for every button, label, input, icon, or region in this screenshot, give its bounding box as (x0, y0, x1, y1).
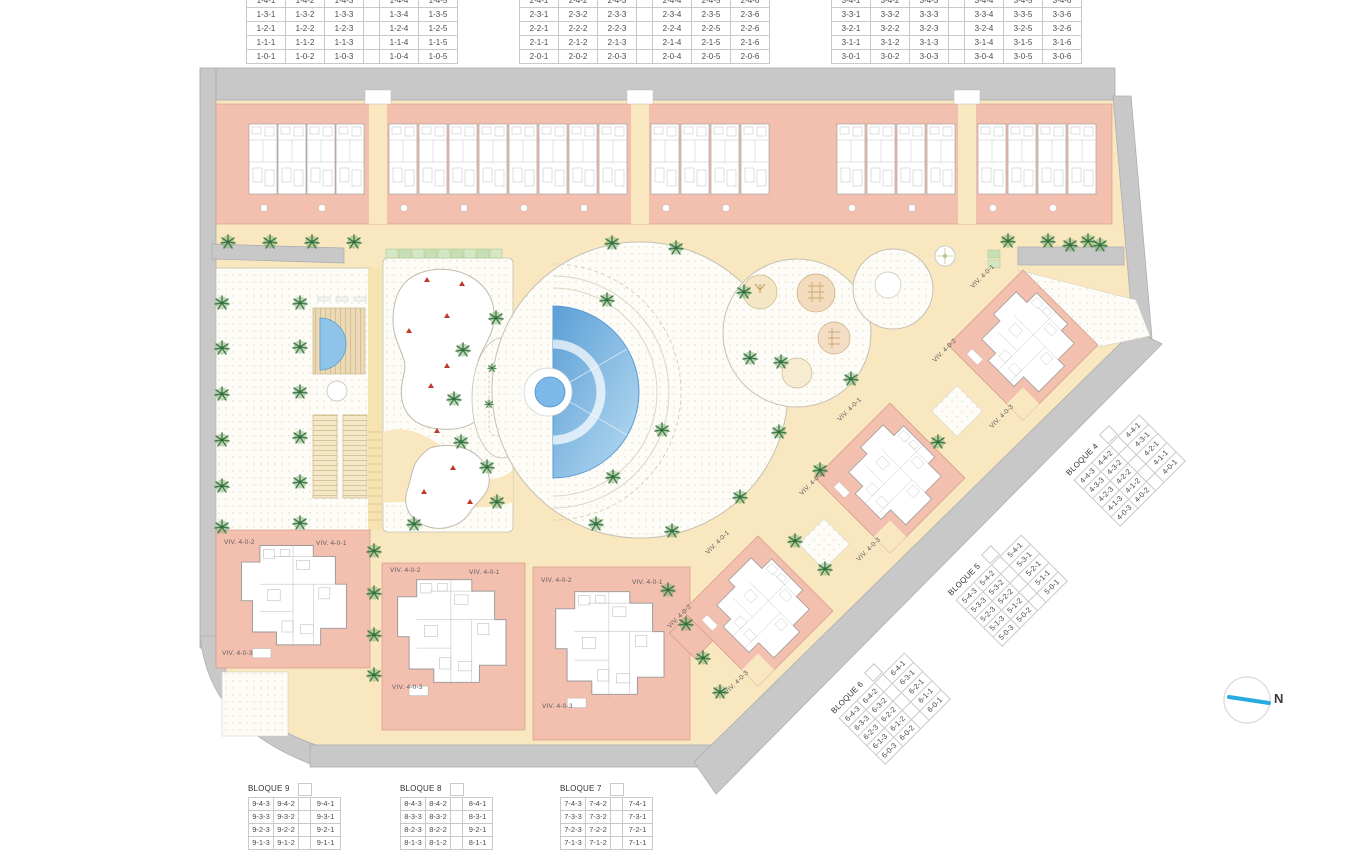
table-gap-cell (949, 36, 965, 50)
unit-cell: 7-2-3 (561, 824, 586, 837)
table-row: 1-3-11-3-21-3-31-3-41-3-5 (247, 8, 458, 22)
unit-cell: 3-4-5 (1004, 0, 1043, 8)
unit-cell: 3-4-4 (965, 0, 1004, 8)
unit-cell: 1-0-5 (419, 50, 458, 64)
unit-cell: 3-3-5 (1004, 8, 1043, 22)
table-gap-cell (949, 22, 965, 36)
table-row: 2-0-12-0-22-0-32-0-42-0-52-0-6 (520, 50, 770, 64)
unit-cell: 7-2-2 (586, 824, 611, 837)
unit-cell: 3-0-1 (832, 50, 871, 64)
table-gap-cell (637, 0, 653, 8)
unit-cell: 1-2-2 (286, 22, 325, 36)
table-row: 1-1-11-1-21-1-31-1-41-1-5 (247, 36, 458, 50)
unit-cell: 8-2-3 (401, 824, 426, 837)
unit-cell: 9-1-3 (249, 837, 274, 850)
unit-cell: 3-3-2 (871, 8, 910, 22)
table-row: 9-4-39-4-29-4-1 (249, 798, 341, 811)
unit-cell: 2-2-4 (653, 22, 692, 36)
table-row: 7-4-37-4-27-4-1 (561, 798, 653, 811)
unit-cell: 1-3-1 (247, 8, 286, 22)
unit-cell: 3-1-4 (965, 36, 1004, 50)
table-gap-cell (611, 824, 623, 837)
unit-cell: 3-2-1 (832, 22, 871, 36)
table-title: BLOQUE 8 (400, 784, 442, 793)
unit-cell: 2-3-4 (653, 8, 692, 22)
table-gap-cell (611, 837, 623, 850)
table-gap-cell (637, 22, 653, 36)
unit-cell: 3-3-4 (965, 8, 1004, 22)
unit-cell: 3-2-4 (965, 22, 1004, 36)
unit-table-bloque-9: BLOQUE 9 9-4-39-4-29-4-19-3-39-3-29-3-19… (248, 783, 343, 850)
unit-cell: 2-4-4 (653, 0, 692, 8)
table-row: 9-3-39-3-29-3-1 (249, 811, 341, 824)
unit-cell: 9-1-1 (311, 837, 341, 850)
table-gap-cell (299, 811, 311, 824)
unit-cell: 3-3-1 (832, 8, 871, 22)
unit-cell: 7-1-1 (623, 837, 653, 850)
unit-cell: 9-4-1 (311, 798, 341, 811)
unit-cell: 2-3-5 (692, 8, 731, 22)
unit-cell: 1-2-4 (380, 22, 419, 36)
unit-cell: 9-2-2 (274, 824, 299, 837)
table-row: 3-0-13-0-23-0-33-0-43-0-53-0-6 (832, 50, 1082, 64)
unit-cell: 3-1-3 (910, 36, 949, 50)
unit-cell: 2-2-1 (520, 22, 559, 36)
unit-cell: 3-3-6 (1043, 8, 1082, 22)
unit-cell: 2-2-5 (692, 22, 731, 36)
unit-cell: 2-0-3 (598, 50, 637, 64)
table-gap-cell (364, 8, 380, 22)
unit-label-block8-3: VIV. 4-0-3 (392, 684, 423, 691)
table-gap-cell (949, 0, 965, 8)
site-plan-page: 1-4-11-4-21-4-31-4-41-4-51-3-11-3-21-3-3… (0, 0, 1360, 850)
unit-cell: 1-3-3 (325, 8, 364, 22)
unit-cell: 8-4-2 (426, 798, 451, 811)
unit-cell: 7-3-1 (623, 811, 653, 824)
unit-cell: 2-0-4 (653, 50, 692, 64)
unit-cell: 8-3-2 (426, 811, 451, 824)
compass-rose-marker (935, 246, 955, 266)
unit-cell: 1-1-2 (286, 36, 325, 50)
unit-cell: 1-4-1 (247, 0, 286, 8)
unit-cell: 2-2-3 (598, 22, 637, 36)
unit-cell: 8-3-3 (401, 811, 426, 824)
unit-cell: 2-3-3 (598, 8, 637, 22)
unit-label-block9-3: VIV. 4-0-3 (222, 650, 253, 657)
table-row: 8-4-38-4-28-4-1 (401, 798, 493, 811)
table-gap-cell (451, 798, 463, 811)
unit-cell: 1-1-5 (419, 36, 458, 50)
table-gap-cell (364, 0, 380, 8)
unit-label-block7-3: VIV. 4-0-3 (542, 703, 573, 710)
unit-cell: 3-0-5 (1004, 50, 1043, 64)
unit-cell: 3-2-6 (1043, 22, 1082, 36)
unit-cell: 8-1-3 (401, 837, 426, 850)
unit-cell: 9-1-2 (274, 837, 299, 850)
unit-cell: 2-4-6 (731, 0, 770, 8)
unit-cell: 7-3-3 (561, 811, 586, 824)
unit-table-bloque-1: 1-4-11-4-21-4-31-4-41-4-51-3-11-3-21-3-3… (246, 0, 458, 64)
unit-cell: 7-4-2 (586, 798, 611, 811)
unit-cell: 3-1-2 (871, 36, 910, 50)
table-gap-cell (299, 824, 311, 837)
unit-cell: 1-0-4 (380, 50, 419, 64)
unit-cell: 9-2-3 (249, 824, 274, 837)
table-row: 1-0-11-0-21-0-31-0-41-0-5 (247, 50, 458, 64)
unit-cell: 3-3-3 (910, 8, 949, 22)
table-row: 8-1-38-1-28-1-1 (401, 837, 493, 850)
table-head-box (298, 783, 312, 796)
table-title: BLOQUE 7 (560, 784, 602, 793)
unit-cell: 9-2-1 (463, 824, 493, 837)
unit-cell: 2-1-6 (731, 36, 770, 50)
table-gap-cell (611, 798, 623, 811)
unit-cell: 1-4-5 (419, 0, 458, 8)
table-gap-cell (949, 50, 965, 64)
block-8 (382, 563, 525, 730)
block-9 (216, 530, 370, 668)
table-row: 3-2-13-2-23-2-33-2-43-2-53-2-6 (832, 22, 1082, 36)
unit-table-bloque-8: BLOQUE 8 8-4-38-4-28-4-18-3-38-3-28-3-18… (400, 783, 495, 850)
unit-cell: 8-2-2 (426, 824, 451, 837)
unit-cell: 9-2-1 (311, 824, 341, 837)
table-row: 1-2-11-2-21-2-31-2-41-2-5 (247, 22, 458, 36)
table-row: 8-3-38-3-28-3-1 (401, 811, 493, 824)
unit-cell: 1-2-3 (325, 22, 364, 36)
table-gap-cell (364, 50, 380, 64)
unit-cell: 8-3-1 (463, 811, 493, 824)
unit-cell: 1-0-3 (325, 50, 364, 64)
table-row: 7-1-37-1-27-1-1 (561, 837, 653, 850)
unit-cell: 1-4-4 (380, 0, 419, 8)
table-gap-cell (611, 811, 623, 824)
unit-cell: 2-4-3 (598, 0, 637, 8)
unit-cell: 2-4-1 (520, 0, 559, 8)
unit-label-block8-1: VIV. 4-0-1 (469, 569, 500, 576)
unit-cell: 3-4-1 (832, 0, 871, 8)
unit-cell: 3-1-1 (832, 36, 871, 50)
north-residential-strip (216, 90, 1112, 224)
table-gap-cell (299, 837, 311, 850)
unit-cell: 9-3-2 (274, 811, 299, 824)
unit-cell: 7-1-2 (586, 837, 611, 850)
unit-cell: 8-1-1 (463, 837, 493, 850)
table-gap-cell (364, 36, 380, 50)
unit-cell: 8-1-2 (426, 837, 451, 850)
unit-label-block9-1: VIV. 4-0-1 (316, 540, 347, 547)
unit-cell: 1-2-1 (247, 22, 286, 36)
table-row: 8-2-38-2-29-2-1 (401, 824, 493, 837)
unit-cell: 2-0-1 (520, 50, 559, 64)
unit-cell: 2-1-4 (653, 36, 692, 50)
unit-cell: 1-0-1 (247, 50, 286, 64)
table-row: 2-2-12-2-22-2-32-2-42-2-52-2-6 (520, 22, 770, 36)
unit-cell: 1-3-5 (419, 8, 458, 22)
unit-cell: 2-4-2 (559, 0, 598, 8)
table-row: 3-4-13-4-23-4-33-4-43-4-53-4-6 (832, 0, 1082, 8)
unit-cell: 7-2-1 (623, 824, 653, 837)
table-gap-cell (637, 50, 653, 64)
unit-cell: 9-3-3 (249, 811, 274, 824)
unit-cell: 2-0-2 (559, 50, 598, 64)
unit-cell: 3-0-3 (910, 50, 949, 64)
unit-cell: 2-2-2 (559, 22, 598, 36)
unit-cell: 3-4-3 (910, 0, 949, 8)
unit-label-block7-1: VIV. 4-0-1 (632, 579, 663, 586)
unit-cell: 2-3-2 (559, 8, 598, 22)
unit-cell: 2-2-6 (731, 22, 770, 36)
table-gap-cell (364, 22, 380, 36)
unit-cell: 1-2-5 (419, 22, 458, 36)
unit-cell: 1-3-4 (380, 8, 419, 22)
unit-cell: 3-2-2 (871, 22, 910, 36)
unit-cell: 7-4-3 (561, 798, 586, 811)
unit-cell: 8-4-3 (401, 798, 426, 811)
unit-cell: 3-0-4 (965, 50, 1004, 64)
table-gap-cell (637, 36, 653, 50)
table-gap-cell (451, 837, 463, 850)
unit-table-bloque-3: 3-4-13-4-23-4-33-4-43-4-53-4-63-3-13-3-2… (831, 0, 1082, 64)
southwest-plaza (222, 672, 288, 736)
unit-cell: 2-3-1 (520, 8, 559, 22)
unit-cell: 3-1-5 (1004, 36, 1043, 50)
unit-cell: 1-1-4 (380, 36, 419, 50)
unit-table-bloque-2: 2-4-12-4-22-4-32-4-42-4-52-4-62-3-12-3-2… (519, 0, 770, 64)
unit-cell: 3-1-6 (1043, 36, 1082, 50)
table-row: 9-2-39-2-29-2-1 (249, 824, 341, 837)
unit-cell: 8-4-1 (463, 798, 493, 811)
unit-cell: 2-3-6 (731, 8, 770, 22)
table-head-box (610, 783, 624, 796)
unit-cell: 3-4-2 (871, 0, 910, 8)
unit-cell: 2-4-5 (692, 0, 731, 8)
unit-cell: 3-2-3 (910, 22, 949, 36)
unit-label-block9-2: VIV. 4-0-2 (224, 539, 255, 546)
unit-cell: 3-0-6 (1043, 50, 1082, 64)
table-row: 2-4-12-4-22-4-32-4-42-4-52-4-6 (520, 0, 770, 8)
unit-cell: 9-4-2 (274, 798, 299, 811)
unit-cell: 7-1-3 (561, 837, 586, 850)
unit-cell: 2-1-5 (692, 36, 731, 50)
unit-cell: 1-1-1 (247, 36, 286, 50)
compass-north-label: N (1274, 691, 1283, 706)
unit-cell: 1-4-2 (286, 0, 325, 8)
unit-cell: 1-4-3 (325, 0, 364, 8)
table-row: 3-1-13-1-23-1-33-1-43-1-53-1-6 (832, 36, 1082, 50)
table-row: 3-3-13-3-23-3-33-3-43-3-53-3-6 (832, 8, 1082, 22)
compass (1224, 677, 1270, 723)
unit-cell: 2-0-5 (692, 50, 731, 64)
unit-table-bloque-7: BLOQUE 7 7-4-37-4-27-4-17-3-37-3-27-3-17… (560, 783, 655, 850)
unit-label-block7-2: VIV. 4-0-2 (541, 577, 572, 584)
unit-cell: 7-4-1 (623, 798, 653, 811)
unit-cell: 9-3-1 (311, 811, 341, 824)
table-row: 9-1-39-1-29-1-1 (249, 837, 341, 850)
table-row: 1-4-11-4-21-4-31-4-41-4-5 (247, 0, 458, 8)
unit-cell: 1-0-2 (286, 50, 325, 64)
unit-label-block8-2: VIV. 4-0-2 (390, 567, 421, 574)
pergola-rows (313, 415, 337, 498)
table-title: BLOQUE 9 (248, 784, 290, 793)
table-gap-cell (637, 8, 653, 22)
unit-cell: 2-1-1 (520, 36, 559, 50)
unit-cell: 3-0-2 (871, 50, 910, 64)
table-gap-cell (299, 798, 311, 811)
table-head-box (450, 783, 464, 796)
unit-cell: 1-3-2 (286, 8, 325, 22)
table-gap-cell (451, 824, 463, 837)
table-row: 7-3-37-3-27-3-1 (561, 811, 653, 824)
table-row: 7-2-37-2-27-2-1 (561, 824, 653, 837)
table-row: 2-3-12-3-22-3-32-3-42-3-52-3-6 (520, 8, 770, 22)
hedge-strip (386, 249, 502, 258)
table-gap-cell (949, 8, 965, 22)
unit-cell: 2-1-3 (598, 36, 637, 50)
site-plan-drawing (0, 0, 1360, 850)
unit-cell: 2-1-2 (559, 36, 598, 50)
unit-cell: 3-2-5 (1004, 22, 1043, 36)
table-row: 2-1-12-1-22-1-32-1-42-1-52-1-6 (520, 36, 770, 50)
unit-cell: 3-4-6 (1043, 0, 1082, 8)
unit-cell: 9-4-3 (249, 798, 274, 811)
table-gap-cell (451, 811, 463, 824)
unit-cell: 2-0-6 (731, 50, 770, 64)
unit-cell: 7-3-2 (586, 811, 611, 824)
kids-pool (535, 377, 565, 407)
unit-cell: 1-1-3 (325, 36, 364, 50)
